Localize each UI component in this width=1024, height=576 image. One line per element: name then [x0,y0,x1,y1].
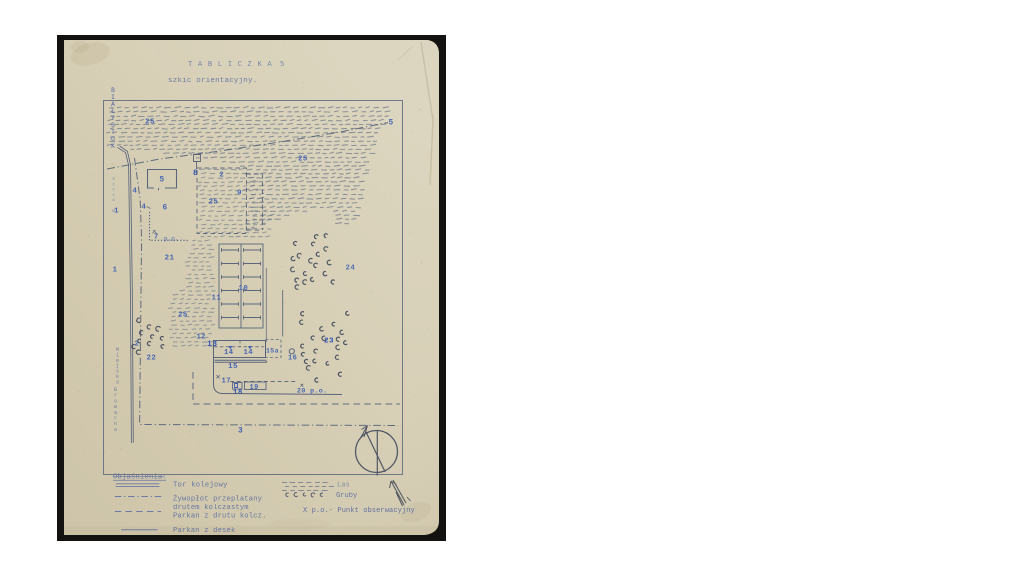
svg-text:5: 5 [280,61,284,69]
svg-text:T A B L I C Z K A: T A B L I C Z K A [188,61,272,69]
svg-text:20 p.o.: 20 p.o. [297,388,328,395]
svg-text:25: 25 [298,156,308,164]
svg-text:25: 25 [209,199,219,207]
svg-text:19: 19 [250,384,259,392]
svg-text:O: O [111,136,115,143]
svg-text:Parkan z desek: Parkan z desek [173,527,235,535]
svg-text:22: 22 [147,355,157,363]
svg-text:Ł: Ł [111,108,115,115]
svg-text:A: A [111,101,115,108]
svg-text:a: a [114,427,117,433]
svg-text:z: z [112,182,115,187]
svg-text:7: 7 [154,234,159,242]
svg-text:I: I [111,94,115,101]
svg-text:16: 16 [288,355,297,363]
svg-text:Żywopłot przeplatany: Żywopłot przeplatany [173,495,263,504]
svg-text:12: 12 [197,334,206,342]
svg-text:4: 4 [133,188,138,196]
svg-text:2: 2 [220,172,225,180]
svg-text:drutem kolczastym: drutem kolczastym [173,504,249,512]
svg-text:24: 24 [346,265,356,273]
svg-text:10: 10 [239,285,249,293]
svg-text:a: a [112,198,115,203]
svg-text:K: K [111,143,115,150]
svg-text:Y: Y [111,115,115,122]
svg-text:9: 9 [237,190,242,198]
svg-text:25: 25 [178,312,188,320]
svg-text:15: 15 [228,363,238,371]
svg-text:B: B [111,87,115,94]
svg-text:11: 11 [212,295,222,303]
svg-text:X p.o.- Punkt obserwacyjny: X p.o.- Punkt obserwacyjny [303,507,415,515]
svg-text:5: 5 [389,120,394,128]
svg-text:3: 3 [238,428,243,436]
svg-text:o: o [112,188,115,193]
svg-text:a: a [116,379,119,385]
svg-text:13: 13 [207,340,217,349]
svg-text:Parkan z drutu kolcz.: Parkan z drutu kolcz. [173,512,267,520]
svg-text:14: 14 [224,349,234,357]
svg-text:2: 2 [135,341,140,349]
svg-text:T: T [111,129,115,136]
svg-text:6: 6 [163,205,168,213]
svg-text:1: 1 [113,267,118,275]
svg-text:S: S [112,176,115,182]
svg-text:8: 8 [193,169,198,178]
svg-text:Las: Las [337,482,350,490]
svg-text:17: 17 [222,378,231,386]
svg-text:Gruby: Gruby [336,492,358,500]
svg-text:5: 5 [160,177,165,185]
svg-text:23: 23 [324,338,334,346]
svg-text:s: s [112,193,115,198]
svg-text:Tor kolejowy: Tor kolejowy [173,482,228,490]
svg-text:14: 14 [244,349,254,357]
svg-text:1: 1 [114,208,119,216]
svg-text:p.o.: p.o. [164,236,178,243]
svg-text:4: 4 [142,204,147,212]
svg-text:15a: 15a [266,348,279,355]
svg-text:21: 21 [165,255,175,263]
svg-text:szkic orientacyjny.: szkic orientacyjny. [168,77,257,85]
svg-text:25: 25 [145,119,155,127]
svg-text:18: 18 [233,389,243,397]
svg-text:S: S [111,122,115,129]
